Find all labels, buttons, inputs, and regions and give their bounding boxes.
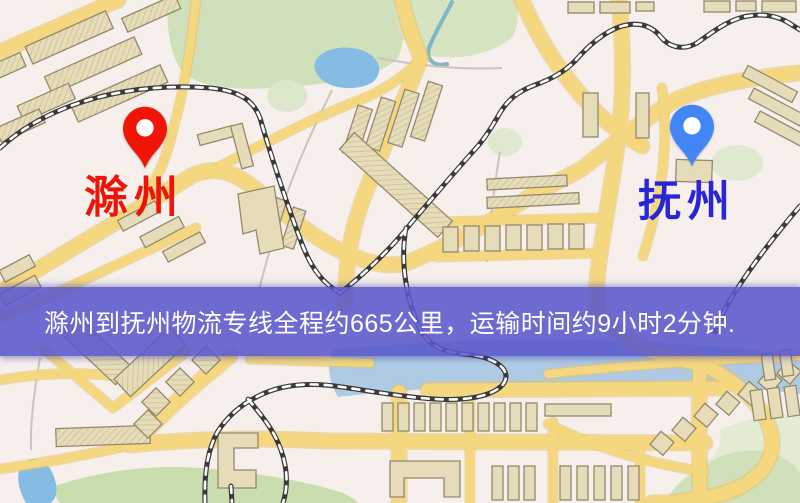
map-canvas [0,0,800,503]
map-screenshot: 滁州 抚州 滁州到抚州物流专线全程约665公里，运输时间约9小时2分钟. [0,0,800,503]
route-info-text: 滁州到抚州物流专线全程约665公里，运输时间约9小时2分钟. [44,304,735,340]
origin-pin-shape [123,107,167,168]
origin-pin-icon[interactable] [120,104,170,170]
destination-city-label: 抚州 [638,181,736,224]
destination-pin-shape [670,105,714,166]
destination-pin-icon[interactable] [667,102,717,168]
origin-city-label: 滁州 [84,176,184,220]
route-info-banner: 滁州到抚州物流专线全程约665公里，运输时间约9小时2分钟. [0,287,800,356]
